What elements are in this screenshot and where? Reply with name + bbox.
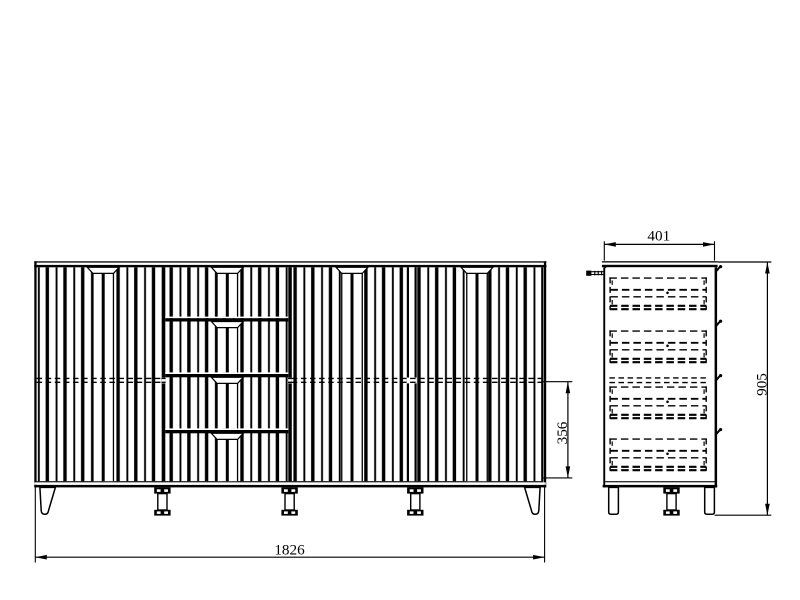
svg-text:356: 356: [554, 421, 571, 444]
svg-text:401: 401: [647, 228, 670, 245]
svg-text:1826: 1826: [274, 542, 305, 559]
svg-text:905: 905: [753, 373, 770, 396]
